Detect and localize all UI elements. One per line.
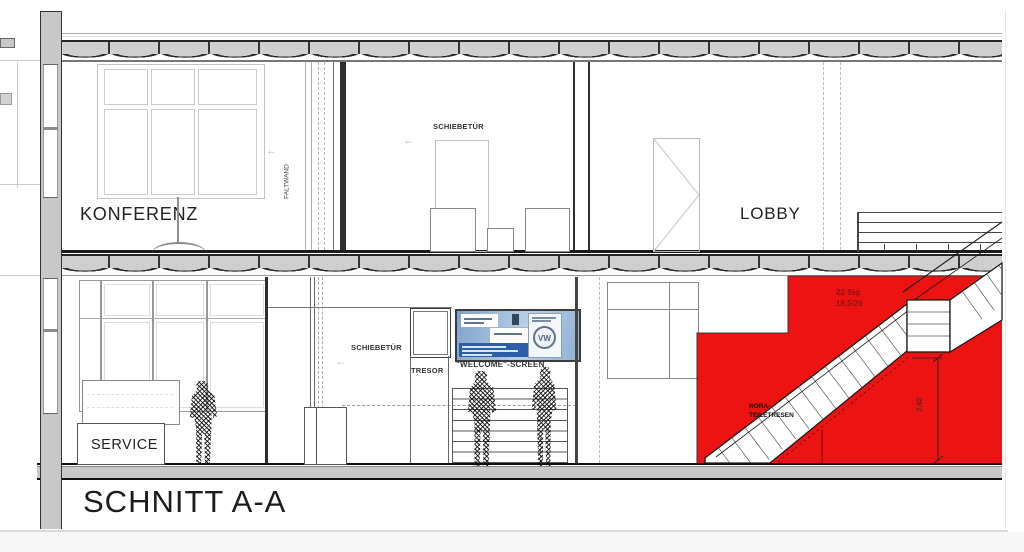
faltwand-label: FALTWAND [284,150,291,214]
schiebetuer-lower-arrow-icon: ← [335,356,347,366]
ground-partition-cut [575,277,578,463]
board-pane [104,109,148,195]
screen-text-panel [461,314,498,327]
upper-wall-cut-2 [573,62,590,250]
folding-wall-line [311,62,312,250]
margin-line [17,62,18,188]
low-cabinet [304,407,347,465]
roof-line [57,33,1002,34]
tresor-label: TRESOR [411,366,443,375]
stair-steps-count: 22 Stg [836,288,863,299]
screen-text-placeholder [462,346,506,348]
paper-right-edge [1005,10,1006,531]
drawing-sheet: KONFERENZ ← FALTWAND ← SCHIEBETÜR LOBBY [0,0,1024,552]
glazing-pane [210,322,264,408]
upper-ceiling-line [60,60,1002,62]
paper-lower-strip [0,532,1024,552]
vw-logo-panel: VW [528,313,562,358]
furniture-box [487,228,514,252]
furniture-box [525,208,570,252]
counter-note: NORA- TEILETRESEN [749,402,794,420]
board-pane [104,69,148,105]
panel-divider [669,283,670,378]
faltwand-arrow-icon: ← [266,146,277,156]
folding-wall-line [305,62,306,250]
stair-landing [907,300,950,352]
screen-bottom-band [459,343,529,357]
counter-note-line2: TEILETRESEN [749,411,794,420]
cabinet-divider [316,408,317,464]
screen-text-placeholder [494,333,522,335]
glazing-transom [80,318,265,319]
roof-deck [60,40,1002,54]
foundation-wall-cut [40,480,62,528]
welcome-screen-label: "WELCOME"-SCREEN [456,360,545,369]
furniture-box [430,208,476,252]
screen-text-placeholder [464,318,492,320]
height-dimension-text: 2,62 [915,385,924,425]
schiebetuer-lower-label: SCHIEBETÜR [351,343,402,352]
counter-shelf-dashed [87,394,173,395]
board-stand-base [152,242,206,253]
board-stand-pole [177,197,179,244]
screen-center-box [489,327,529,344]
board-pane [151,109,195,195]
margin-line [0,184,40,185]
presentation-board [97,64,265,199]
stair-steps-note: 22 Stg 18,5/26 [836,288,863,310]
left-wall-window-upper [43,64,58,198]
board-pane [151,69,195,105]
glazing-pane [156,284,204,316]
counter-note-line1: NORA- [749,402,794,411]
window-mullion-tick [43,329,58,332]
screen-glyph-icon [512,314,519,325]
window-mullion-tick [43,127,58,130]
panel-divider [608,309,698,310]
stair-zone [690,200,1005,465]
glazing-pane [104,284,150,316]
room-label-konferenz: KONFERENZ [80,204,198,225]
ground-wall-cut [265,277,268,463]
board-pane [198,69,257,105]
vw-logo-icon: VW [533,326,556,349]
counter-shelf-dashed [87,407,173,408]
screen-text-placeholder [532,320,551,322]
schiebetuer-upper-arrow-icon: ← [403,135,415,145]
screen-text-placeholder [462,350,518,352]
folding-wall-dashed [318,62,319,250]
margin-fragment [0,93,12,105]
screen-text-placeholder [464,322,484,324]
stair-rise-run: 18,5/26 [836,299,863,310]
room-label-service: SERVICE [91,437,158,453]
service-counter-back [82,380,180,425]
margin-fragment [0,38,15,48]
screen-text-placeholder [532,317,556,319]
roof-line-2 [57,36,1002,37]
folding-wall-line [333,62,334,250]
folding-wall-dashed [324,62,325,250]
stair-wall-panel [607,282,699,379]
ground-slab-band [37,466,1002,478]
tresor-column-line [448,356,449,463]
tresor-inner-frame [413,311,448,355]
schiebetuer-upper-label: SCHIEBETÜR [433,122,484,131]
drawing-title: SCHNITT A-A [83,484,286,520]
left-wall-window-lower [43,278,58,414]
glazing-pane [210,284,264,316]
grid-dashed-line [599,277,600,463]
welcome-screen: VW [455,309,581,362]
ground-slab-bottom [37,478,1002,481]
tresor-box [410,308,451,358]
board-pane [198,109,257,195]
screen-text-placeholder [462,354,492,356]
upper-wall-cut [340,62,346,250]
